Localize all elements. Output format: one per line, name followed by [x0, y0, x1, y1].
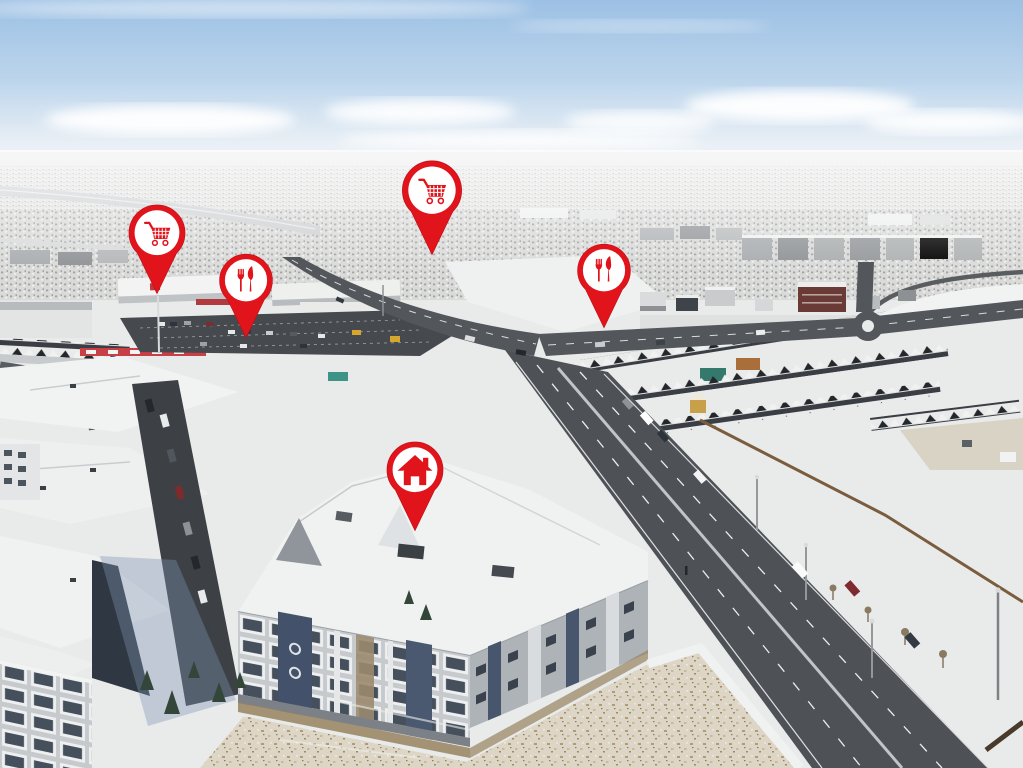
aerial-listing-photo [0, 0, 1023, 768]
map-pin-grocery-north[interactable] [395, 155, 469, 256]
pin-shape [402, 161, 461, 255]
map-pin-restaurant-east[interactable] [571, 239, 637, 329]
map-pin-home[interactable] [380, 437, 450, 532]
brick-building [798, 282, 846, 312]
map-pin-grocery-west[interactable] [122, 200, 192, 295]
pin-shape [220, 254, 273, 338]
map-pin-restaurant-west[interactable] [213, 249, 279, 339]
flag-pole [158, 296, 159, 352]
pin-shape [577, 244, 630, 328]
pedestrian [685, 566, 688, 575]
aerial-photo-scene [0, 0, 1023, 768]
pin-shape [129, 205, 185, 294]
rooftop-unit [397, 544, 424, 560]
